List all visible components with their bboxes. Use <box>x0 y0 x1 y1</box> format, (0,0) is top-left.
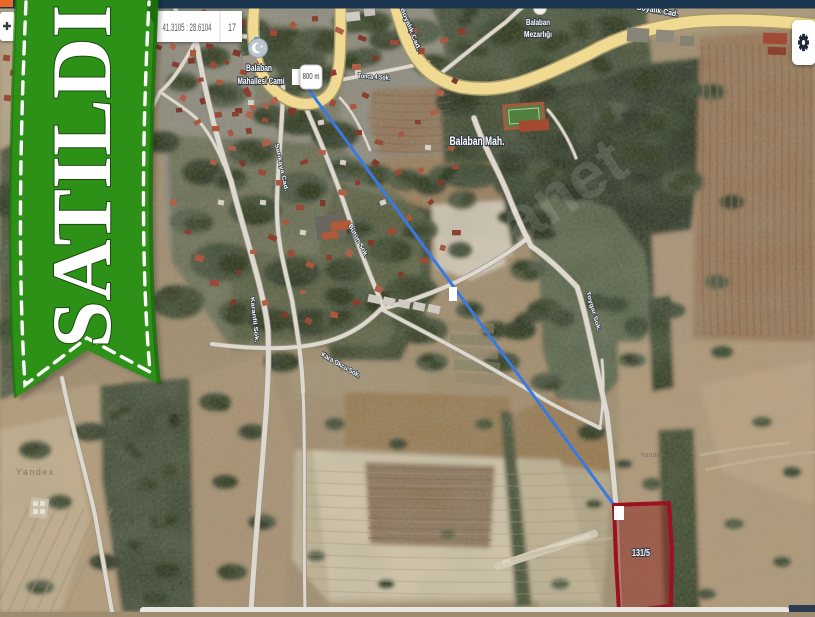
svg-text:Balaban: Balaban <box>526 17 550 27</box>
svg-text:131/5: 131/5 <box>632 548 650 559</box>
svg-text:Yandex: Yandex <box>16 467 55 477</box>
svg-text:Mahallesi Cami: Mahallesi Cami <box>238 76 285 87</box>
svg-text:Yandex: Yandex <box>640 452 665 459</box>
svg-text:17: 17 <box>228 22 236 34</box>
svg-text:Mezarlığı: Mezarlığı <box>524 29 552 39</box>
svg-text:800 m: 800 m <box>303 71 320 81</box>
svg-text:SATILDI: SATILDI <box>35 5 129 348</box>
svg-text:Balaban: Balaban <box>246 63 272 74</box>
svg-text:41.3105 : 28.6104: 41.3105 : 28.6104 <box>163 22 212 34</box>
svg-text:Balaban Mah.: Balaban Mah. <box>450 136 505 148</box>
